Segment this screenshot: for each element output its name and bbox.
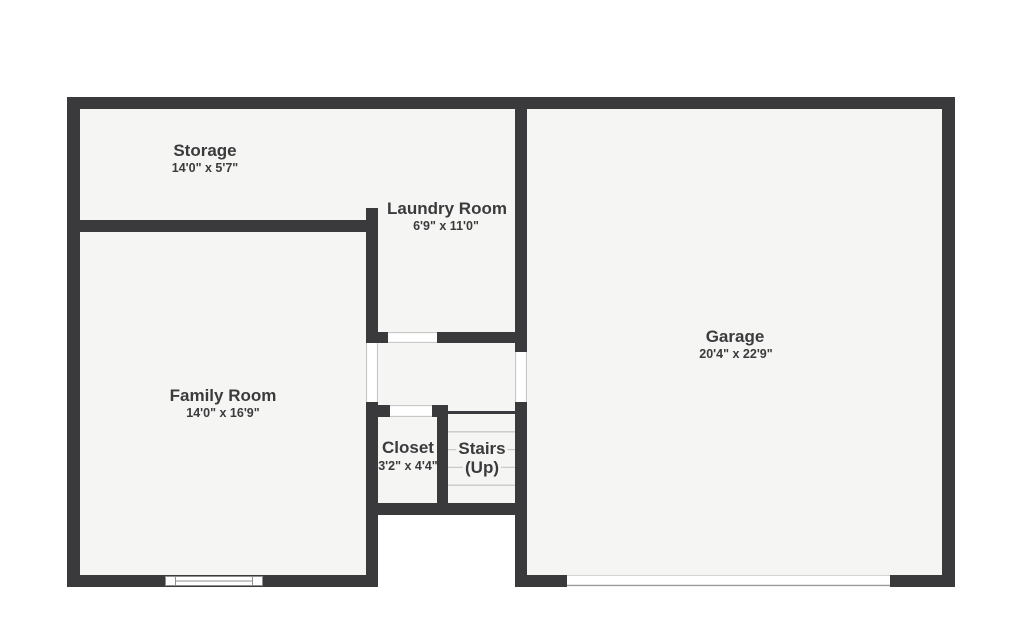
closet-door-opening: [390, 405, 432, 417]
room-label-storage: Storage: [173, 141, 236, 160]
wall-laundry-bottom-right: [437, 332, 527, 343]
wall-storage-family-divider: [67, 220, 378, 232]
room-label-closet: Closet: [382, 438, 434, 457]
wall-closet-top-left-stub: [378, 405, 390, 417]
laundry-door-opening: [388, 332, 437, 343]
wall-outer-top: [67, 97, 955, 109]
window-symbol: [166, 577, 263, 586]
floor-plan-drawing: Storage 14'0" x 5'7" Laundry Room 6'9" x…: [0, 0, 1023, 637]
wall-garage-left-lower: [515, 402, 527, 587]
wall-mid-vertical-upper: [366, 208, 378, 343]
room-dims-garage: 20'4" x 22'9": [699, 347, 772, 361]
room-dims-closet: 3'2" x 4'4": [378, 459, 438, 473]
garage-hall-opening: [515, 352, 527, 402]
floor-plan-canvas: Storage 14'0" x 5'7" Laundry Room 6'9" x…: [0, 0, 1023, 637]
garage-door-symbol: [567, 575, 890, 586]
room-dims-storage: 14'0" x 5'7": [172, 161, 239, 175]
room-dims-family: 14'0" x 16'9": [186, 406, 259, 420]
exterior-notch: [378, 515, 515, 587]
garage-door-gap: [567, 575, 890, 586]
family-hall-opening: [366, 343, 378, 402]
room-dims-laundry: 6'9" x 11'0": [413, 219, 479, 233]
wall-laundry-bottom-left-stub: [366, 332, 388, 343]
wall-outer-right: [942, 97, 955, 587]
wall-closet-stairs-bottom: [366, 503, 527, 515]
room-label-family: Family Room: [170, 386, 277, 405]
wall-closet-right: [437, 405, 448, 515]
stairs-top-edge-line: [448, 411, 515, 414]
wall-outer-left: [67, 97, 80, 587]
room-label-stairs: Stairs: [458, 439, 505, 458]
stairs-direction-label: (Up): [465, 458, 499, 477]
wall-mid-vertical-lower: [366, 402, 378, 587]
wall-garage-bottom-right: [890, 575, 955, 587]
room-label-laundry: Laundry Room: [387, 199, 507, 218]
room-label-garage: Garage: [706, 327, 765, 346]
wall-garage-left-upper: [515, 97, 527, 352]
